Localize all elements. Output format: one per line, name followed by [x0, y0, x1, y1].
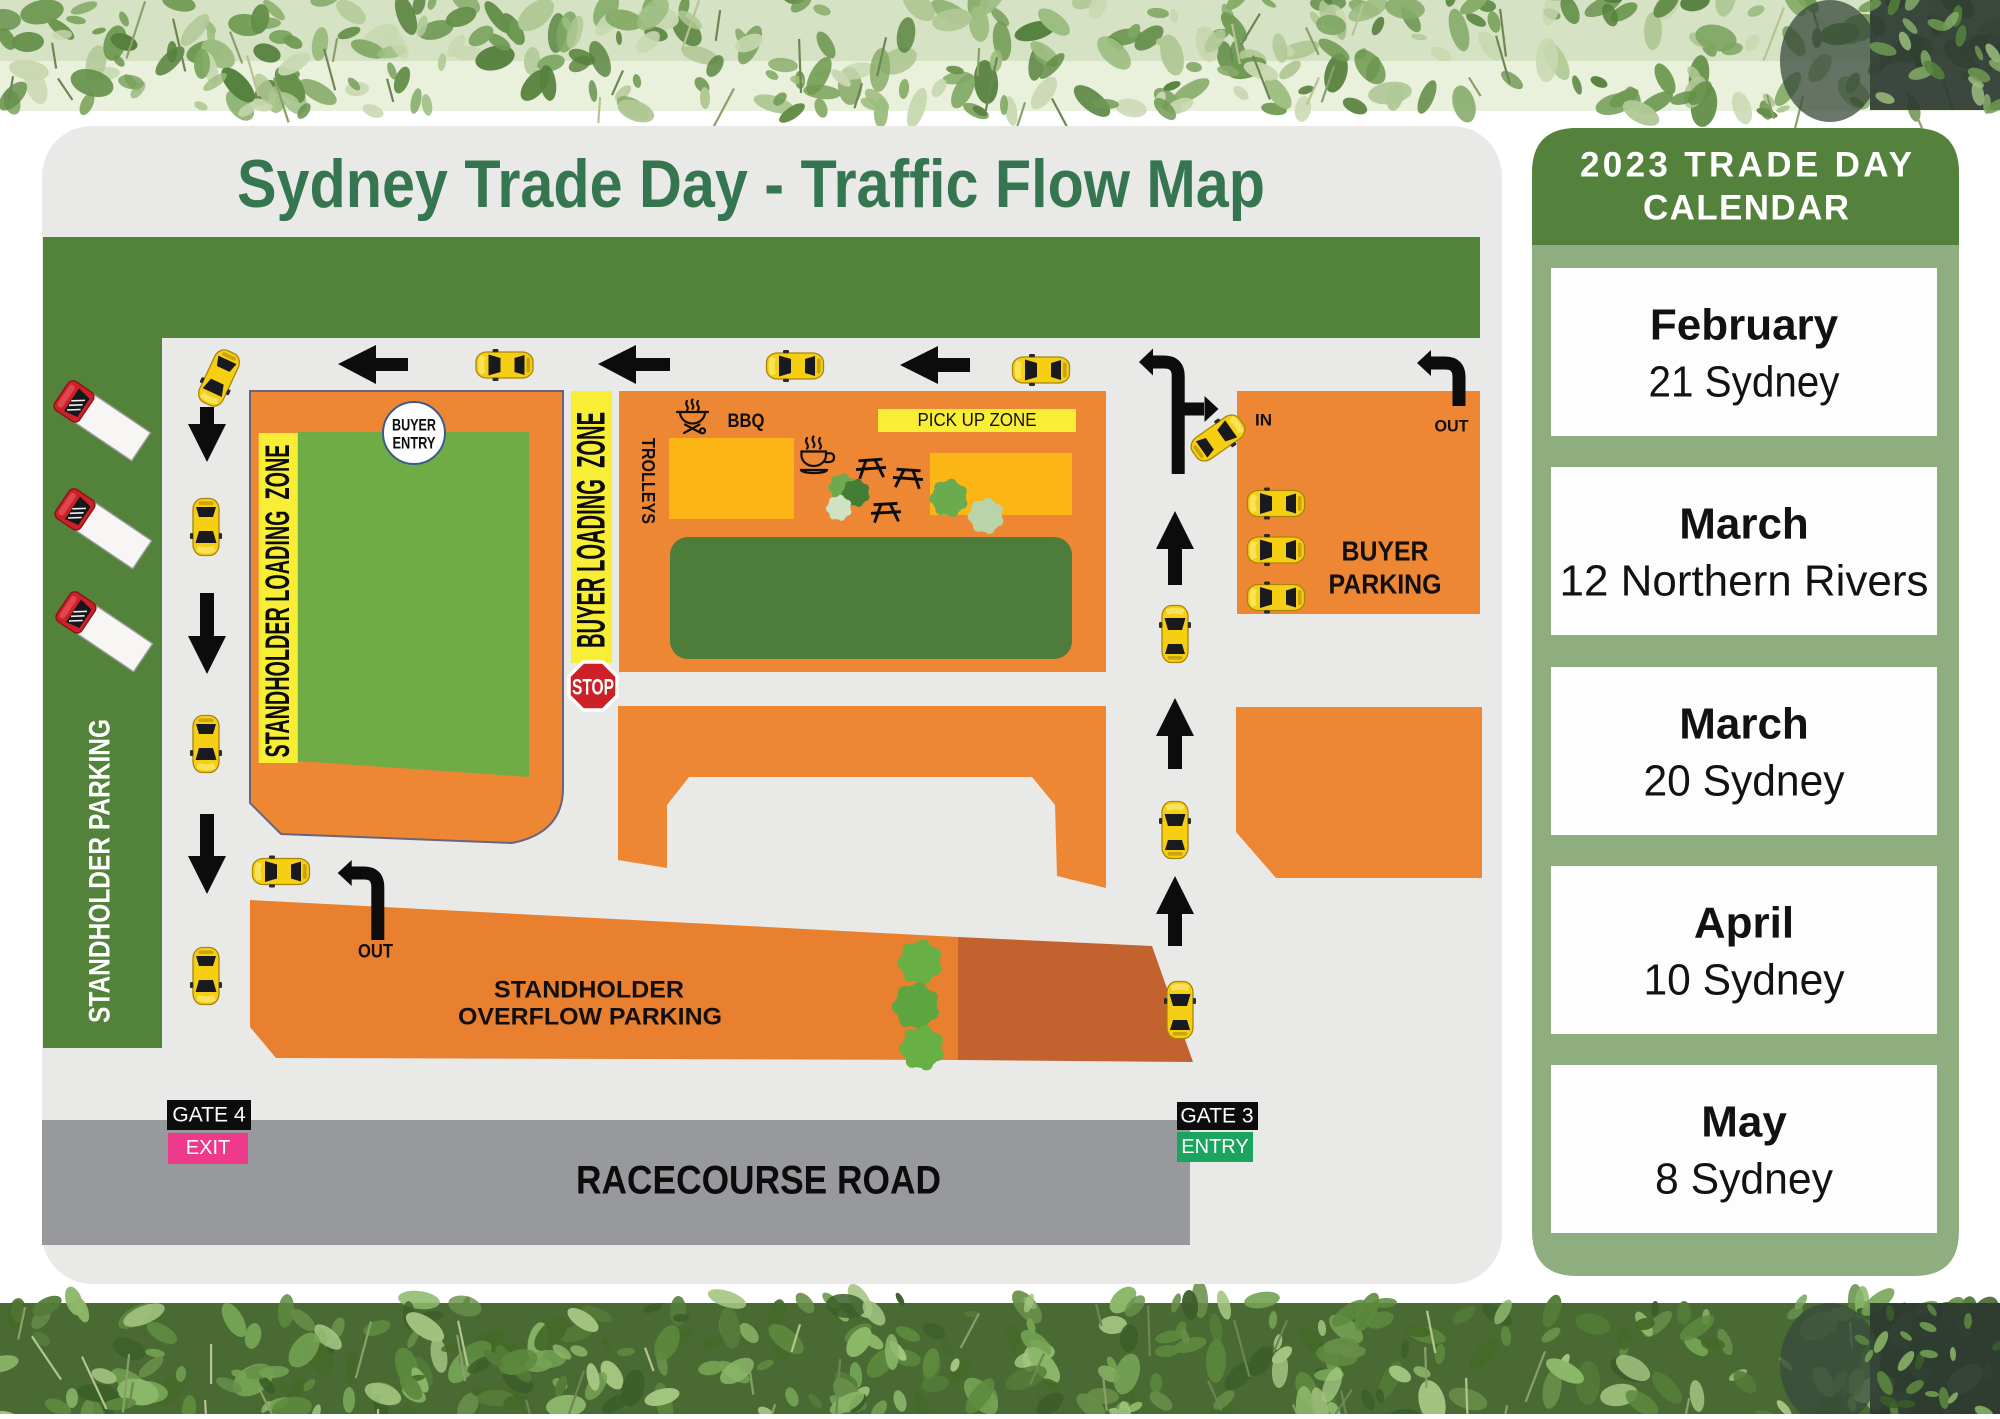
- svg-text:GATE 4: GATE 4: [172, 1104, 245, 1127]
- svg-text:EXIT: EXIT: [186, 1137, 230, 1159]
- svg-text:STANDHOLDER LOADING ZONE: STANDHOLDER LOADING ZONE: [259, 445, 297, 758]
- svg-text:ENTRY: ENTRY: [393, 434, 436, 453]
- svg-text:CALENDAR: CALENDAR: [1643, 189, 1849, 228]
- svg-text:8 Sydney: 8 Sydney: [1655, 1155, 1833, 1204]
- svg-text:BUYER LOADING ZONE: BUYER LOADING ZONE: [570, 412, 614, 648]
- svg-text:OUT: OUT: [1435, 417, 1470, 436]
- svg-text:STANDHOLDER: STANDHOLDER: [494, 977, 684, 1004]
- svg-text:IN: IN: [1255, 411, 1272, 430]
- svg-text:PICK UP ZONE: PICK UP ZONE: [918, 410, 1037, 430]
- svg-text:STANDHOLDER PARKING: STANDHOLDER PARKING: [84, 719, 117, 1023]
- svg-text:BUYER: BUYER: [392, 416, 436, 435]
- svg-text:RACECOURSE ROAD: RACECOURSE ROAD: [576, 1159, 941, 1203]
- svg-text:10 Sydney: 10 Sydney: [1644, 956, 1845, 1005]
- svg-text:May: May: [1701, 1098, 1787, 1147]
- svg-text:GATE 3: GATE 3: [1180, 1105, 1253, 1128]
- svg-text:April: April: [1694, 899, 1794, 948]
- svg-text:ENTRY: ENTRY: [1181, 1136, 1248, 1158]
- svg-text:OUT: OUT: [358, 942, 393, 963]
- svg-text:OVERFLOW PARKING: OVERFLOW PARKING: [458, 1004, 722, 1031]
- svg-text:PARKING: PARKING: [1329, 569, 1442, 600]
- svg-text:February: February: [1650, 301, 1839, 350]
- svg-text:TROLLEYS: TROLLEYS: [638, 438, 658, 524]
- svg-text:BBQ: BBQ: [728, 411, 765, 432]
- svg-text:STOP: STOP: [572, 675, 614, 700]
- svg-text:BUYER: BUYER: [1342, 536, 1429, 567]
- svg-text:21 Sydney: 21 Sydney: [1649, 358, 1840, 407]
- svg-text:March: March: [1679, 500, 1809, 549]
- svg-text:12 Northern Rivers: 12 Northern Rivers: [1560, 557, 1929, 606]
- svg-text:Sydney Trade Day - Traffic Flo: Sydney Trade Day - Traffic Flow Map: [237, 146, 1265, 222]
- svg-text:20 Sydney: 20 Sydney: [1644, 757, 1845, 806]
- svg-text:March: March: [1679, 700, 1809, 749]
